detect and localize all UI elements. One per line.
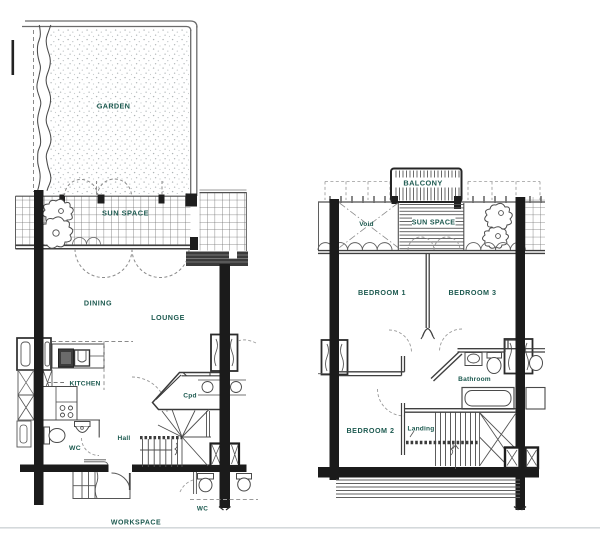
svg-text:Landing: Landing <box>407 426 434 433</box>
svg-text:GARDEN: GARDEN <box>97 102 130 111</box>
svg-text:WC: WC <box>69 445 81 452</box>
svg-text:BEDROOM 1: BEDROOM 1 <box>358 288 406 297</box>
svg-text:Cpd: Cpd <box>183 393 196 400</box>
svg-text:SUN SPACE: SUN SPACE <box>102 209 149 218</box>
svg-text:BEDROOM 2: BEDROOM 2 <box>346 426 394 435</box>
svg-text:BALCONY: BALCONY <box>403 179 442 188</box>
svg-text:SUN SPACE: SUN SPACE <box>412 219 456 227</box>
svg-text:Void: Void <box>359 221 374 228</box>
svg-text:Hall: Hall <box>118 435 131 442</box>
svg-text:DINING: DINING <box>84 299 112 308</box>
svg-text:WORKSPACE: WORKSPACE <box>111 520 161 527</box>
svg-text:BEDROOM 3: BEDROOM 3 <box>448 288 496 297</box>
svg-text:LOUNGE: LOUNGE <box>151 313 185 322</box>
svg-text:WC: WC <box>197 506 208 513</box>
svg-text:Bathroom: Bathroom <box>458 376 491 383</box>
